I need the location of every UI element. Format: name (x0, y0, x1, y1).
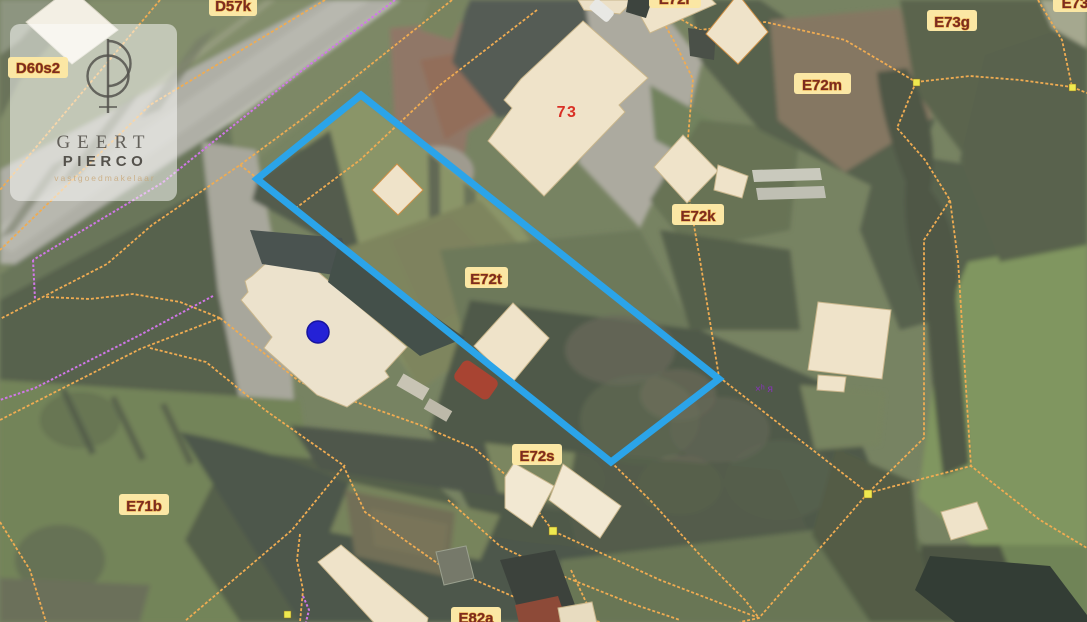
svg-text:D57k: D57k (215, 0, 252, 15)
svg-text:73: 73 (557, 104, 578, 121)
svg-text:D60s2: D60s2 (16, 60, 60, 77)
svg-text:E82a: E82a (458, 610, 494, 622)
svg-text:E72m: E72m (802, 77, 842, 94)
svg-text:vastgoedmakelaar: vastgoedmakelaar (54, 173, 155, 183)
svg-text:E72t: E72t (470, 271, 502, 288)
svg-text:E72k: E72k (680, 208, 716, 225)
svg-text:E72s: E72s (519, 448, 554, 465)
svg-text:E73: E73 (1062, 0, 1087, 12)
svg-text:×ʰ я: ×ʰ я (755, 384, 773, 395)
svg-text:E72r: E72r (659, 0, 692, 8)
svg-text:E73g: E73g (934, 14, 970, 31)
svg-text:GEERT: GEERT (56, 132, 151, 153)
svg-text:PIERCO: PIERCO (63, 153, 148, 170)
svg-text:E71b: E71b (126, 498, 162, 515)
